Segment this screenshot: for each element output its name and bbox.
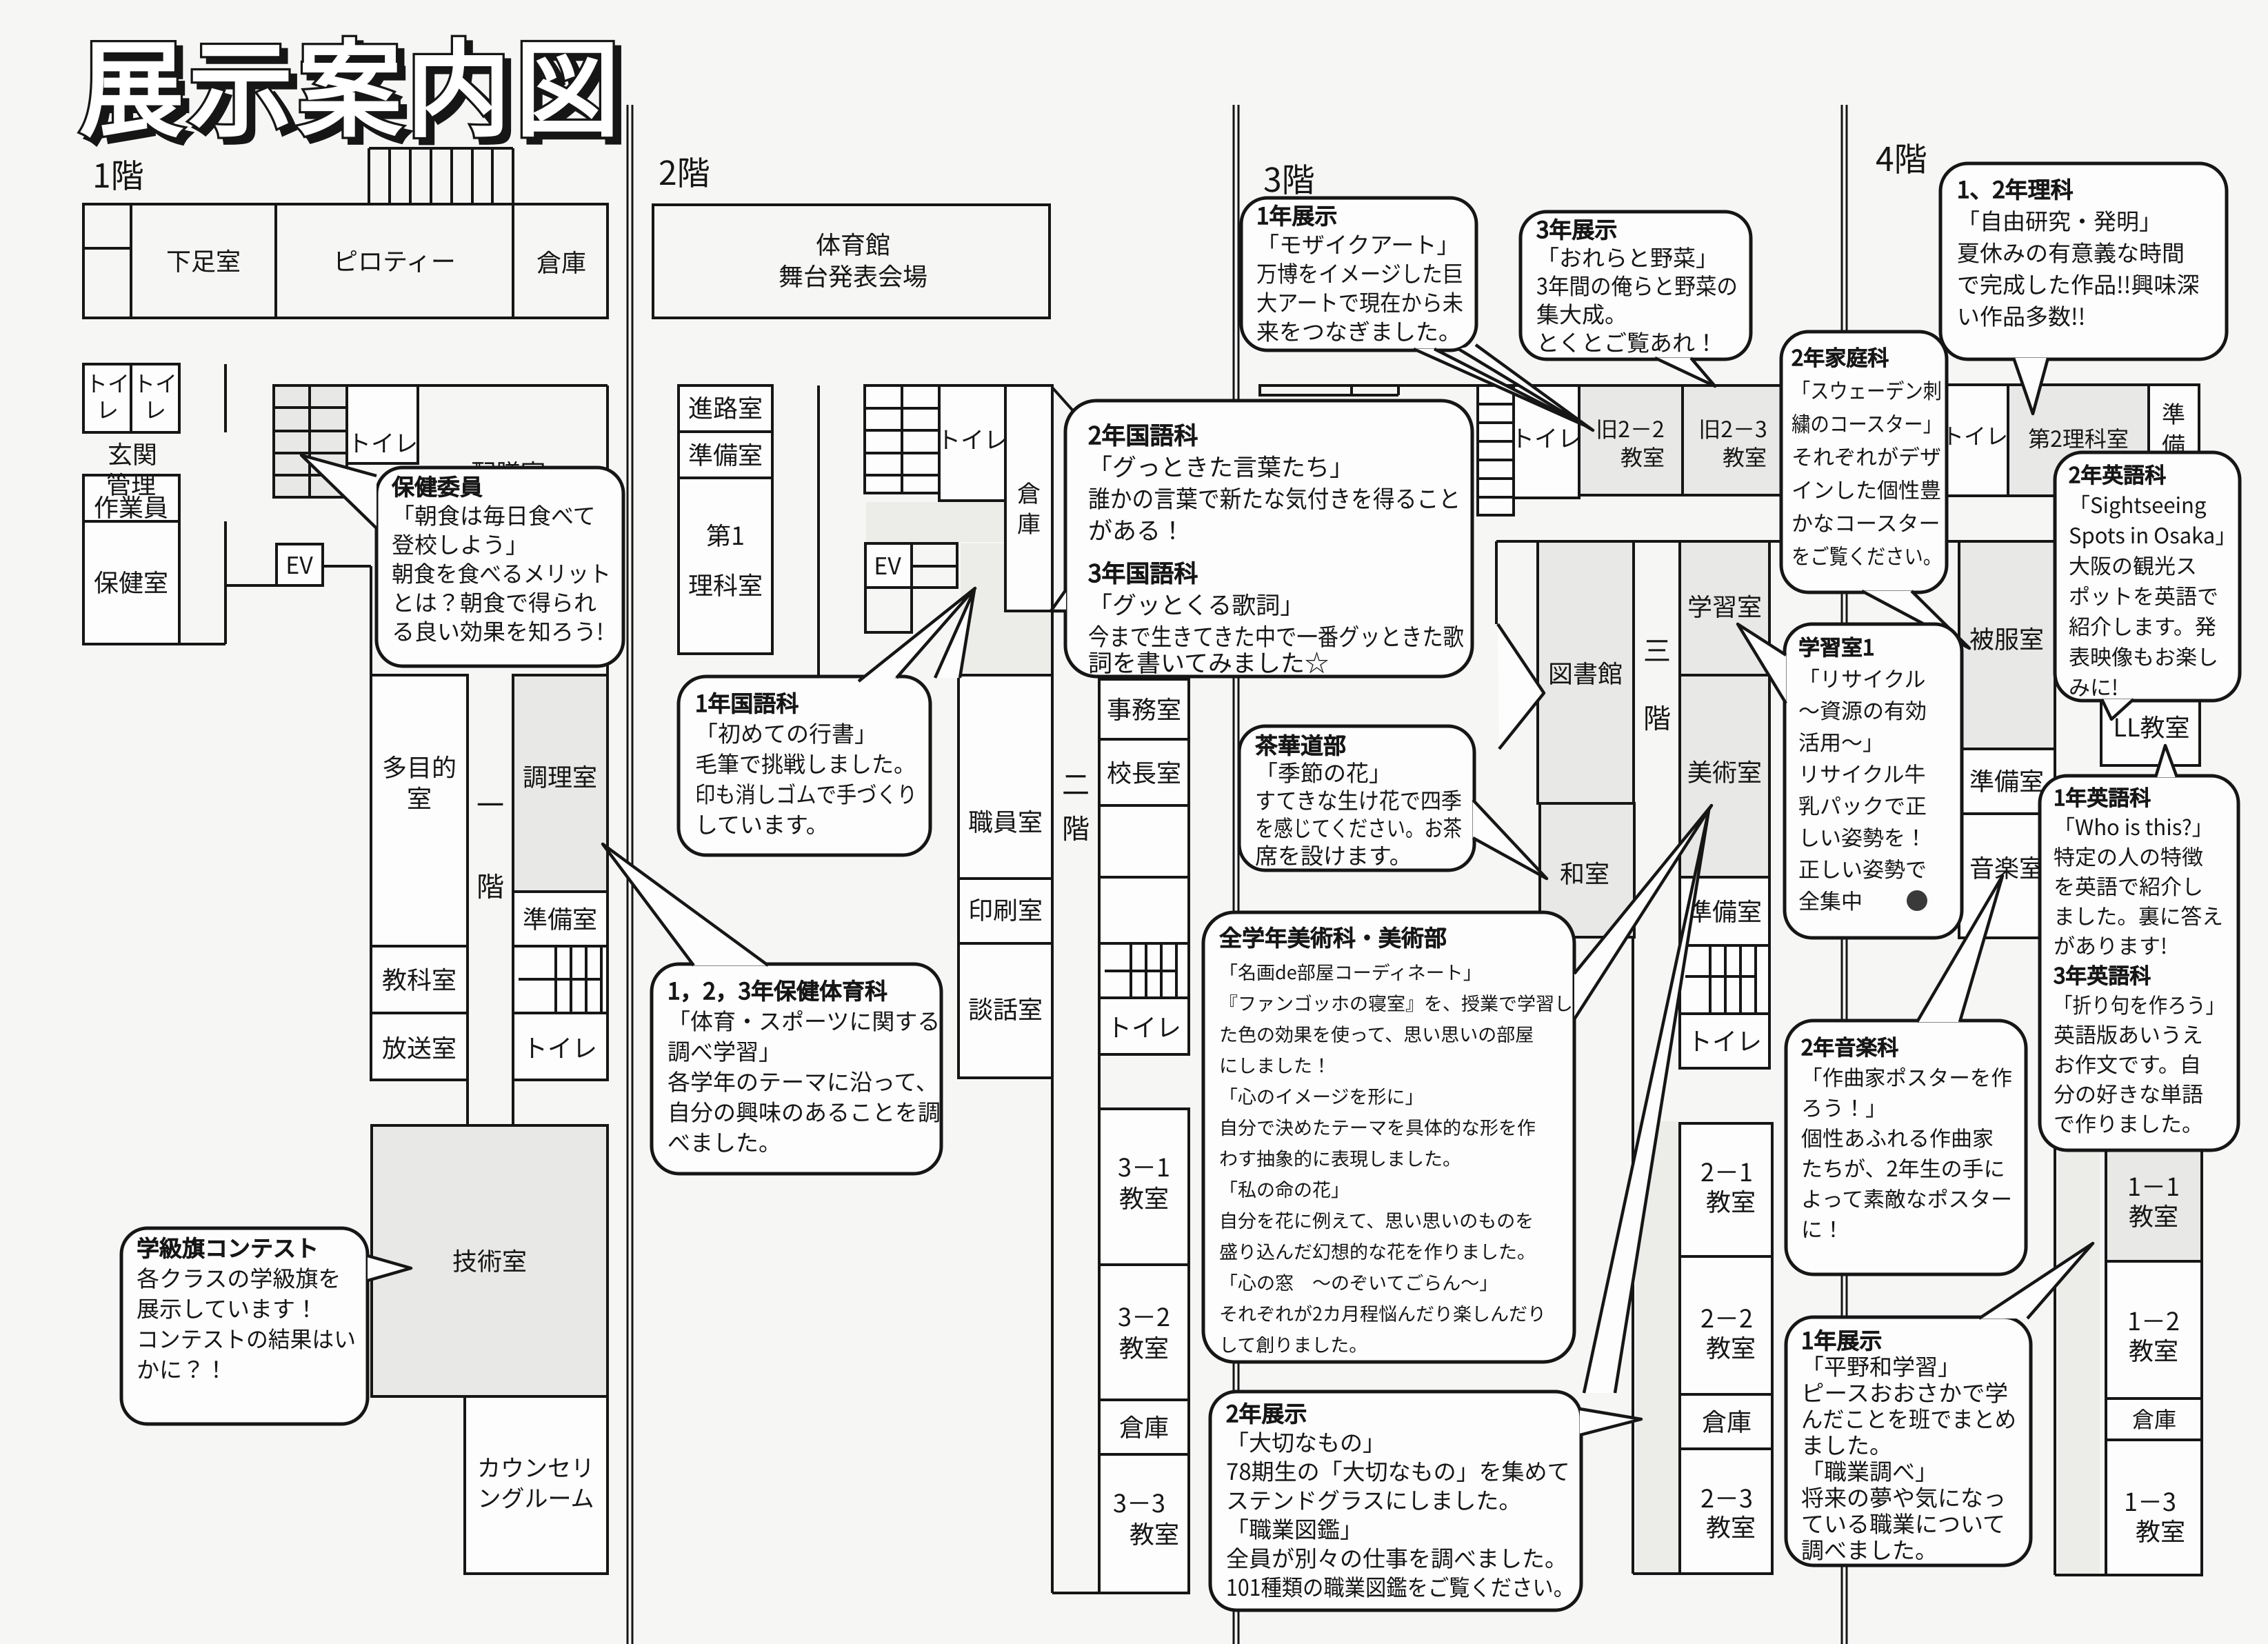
- svg-text:かに？！: かに？！: [137, 1352, 228, 1385]
- svg-text:『ファンゴッホの寝室』を、授業で学習し: 『ファンゴッホの寝室』を、授業で学習し: [1219, 989, 1573, 1016]
- svg-text:準備室: 準備室: [1687, 892, 1762, 928]
- svg-text:自分を花に例えて、思い思いのものを: 自分を花に例えて、思い思いのものを: [1219, 1206, 1534, 1233]
- svg-text:進路室: 進路室: [688, 389, 763, 425]
- svg-text:活用～」: 活用～」: [1798, 725, 1884, 756]
- svg-text:「心の窓 ～のぞいてごらん～」: 「心の窓 ～のぞいてごらん～」: [1219, 1268, 1498, 1295]
- svg-text:倉: 倉: [1017, 475, 1041, 509]
- svg-text:正しい姿勢で: 正しい姿勢で: [1798, 852, 1927, 883]
- svg-text:旧2－2: 旧2－2: [1596, 412, 1665, 444]
- svg-text:「私の命の花」: 「私の命の花」: [1219, 1175, 1349, 1202]
- svg-text:倉庫: 倉庫: [536, 243, 586, 279]
- svg-text:LL教室: LL教室: [2113, 708, 2189, 744]
- svg-text:に！: に！: [1801, 1212, 1844, 1243]
- svg-text:体育館: 体育館: [816, 225, 890, 261]
- svg-text:それぞれがデザ: それぞれがデザ: [1792, 440, 1941, 471]
- svg-text:トイレ: トイレ: [1942, 419, 2008, 451]
- svg-text:調べ学習」: 調べ学習」: [668, 1034, 781, 1067]
- svg-text:4階: 4階: [1876, 132, 1927, 181]
- svg-text:教室: 教室: [2129, 1197, 2178, 1233]
- svg-text:2年国語科: 2年国語科: [1088, 417, 1198, 452]
- svg-text:全員が別々の仕事を調べました。: 全員が別々の仕事を調べました。: [1226, 1541, 1567, 1574]
- svg-text:倉庫: 倉庫: [2132, 1403, 2176, 1434]
- svg-text:3年国語科: 3年国語科: [1088, 554, 1198, 590]
- svg-text:「自由研究・発明」: 「自由研究・発明」: [1957, 203, 2162, 237]
- svg-text:い作品多数!!: い作品多数!!: [1957, 299, 2085, 332]
- svg-text:コンテストの結果はい: コンテストの結果はい: [137, 1321, 356, 1354]
- svg-text:被服室: 被服室: [1969, 620, 2044, 656]
- svg-text:「名画de部屋コーディネート」: 「名画de部屋コーディネート」: [1219, 958, 1482, 985]
- svg-text:た色の効果を使って、思い思いの部屋: た色の効果を使って、思い思いの部屋: [1219, 1020, 1534, 1047]
- svg-text:大アートで現在から未: 大アートで現在から未: [1256, 285, 1463, 318]
- svg-text:自分で決めたテーマを具体的な形を作: 自分で決めたテーマを具体的な形を作: [1219, 1113, 1536, 1140]
- svg-text:よって素敵なポスター: よって素敵なポスター: [1801, 1182, 2012, 1213]
- svg-text:毛筆で挑戦しました。: 毛筆で挑戦しました。: [695, 746, 916, 779]
- svg-text:教室: 教室: [1119, 1329, 1169, 1365]
- svg-text:誰かの言葉で新たな気付きを得ること: 誰かの言葉で新たな気付きを得ること: [1088, 480, 1461, 515]
- svg-text:印刷室: 印刷室: [968, 891, 1043, 927]
- svg-text:「リサイクル: 「リサイクル: [1798, 662, 1925, 693]
- svg-text:三: 三: [1643, 629, 1671, 669]
- svg-text:準備室: 準備室: [523, 900, 597, 936]
- svg-text:トイレ: トイレ: [937, 421, 1007, 455]
- svg-text:一: 一: [476, 783, 504, 823]
- svg-text:第1: 第1: [706, 517, 745, 552]
- svg-text:理科室: 理科室: [688, 566, 763, 602]
- svg-text:2年展示: 2年展示: [1226, 1396, 1307, 1429]
- svg-text:和室: 和室: [1560, 854, 1609, 890]
- svg-text:レ: レ: [97, 393, 119, 425]
- svg-text:各クラスの学級旗を: 各クラスの学級旗を: [137, 1261, 341, 1294]
- svg-text:「グッとくる歌詞」: 「グッとくる歌詞」: [1088, 586, 1304, 621]
- svg-text:倉庫: 倉庫: [1702, 1403, 1752, 1438]
- svg-text:リサイクル牛: リサイクル牛: [1798, 757, 1925, 788]
- svg-text:作業員: 作業員: [94, 488, 168, 524]
- svg-text:る良い効果を知ろう!: る良い効果を知ろう!: [392, 614, 604, 647]
- svg-text:技術室: 技術室: [452, 1242, 527, 1278]
- svg-text:たちが、2年生の手に: たちが、2年生の手に: [1801, 1152, 2005, 1183]
- svg-text:舞台発表会場: 舞台発表会場: [779, 257, 927, 293]
- svg-text:トイレ: トイレ: [1687, 1022, 1762, 1058]
- svg-text:で作りました。: で作りました。: [2054, 1107, 2203, 1138]
- svg-text:1年国語科: 1年国語科: [695, 685, 799, 719]
- svg-text:教室: 教室: [1130, 1515, 1179, 1551]
- svg-text:それぞれが2カ月程悩んだり楽しんだり: それぞれが2カ月程悩んだり楽しんだり: [1219, 1299, 1546, 1326]
- svg-text:しい姿勢を！: しい姿勢を！: [1798, 821, 1927, 852]
- svg-text:2年家庭科: 2年家庭科: [1792, 341, 1889, 372]
- svg-text:大阪の観光ス: 大阪の観光ス: [2069, 549, 2197, 580]
- svg-text:ポットを英語で: ポットを英語で: [2069, 579, 2218, 610]
- svg-text:英語版あいうえ: 英語版あいうえ: [2054, 1018, 2203, 1049]
- svg-text:カウンセリ: カウンセリ: [477, 1450, 594, 1483]
- svg-text:Spots in Osaka」: Spots in Osaka」: [2069, 519, 2236, 550]
- svg-text:トイレ: トイレ: [348, 425, 418, 459]
- svg-text:自分の興味のあることを調: 自分の興味のあることを調: [668, 1094, 941, 1127]
- svg-text:しています。: しています。: [695, 807, 829, 840]
- svg-text:個性あふれる作曲家: 個性あふれる作曲家: [1801, 1121, 1994, 1152]
- svg-text:とは？朝食で得られ: とは？朝食で得られ: [392, 585, 596, 618]
- svg-text:教室: 教室: [1706, 1508, 1756, 1544]
- svg-text:印も消しゴムで手づくり: 印も消しゴムで手づくり: [695, 776, 917, 810]
- svg-text:調理室: 調理室: [523, 758, 597, 794]
- svg-text:トイレ: トイレ: [1511, 420, 1581, 454]
- svg-text:EV: EV: [874, 548, 901, 581]
- svg-text:ングルーム: ングルーム: [478, 1480, 594, 1514]
- svg-text:朝食を食べるメリット: 朝食を食べるメリット: [392, 556, 611, 589]
- svg-text:1階: 1階: [92, 149, 144, 197]
- svg-text:がある！: がある！: [1088, 512, 1185, 547]
- svg-text:分の好きな単語: 分の好きな単語: [2054, 1077, 2203, 1108]
- svg-text:調べました。: 調べました。: [1801, 1532, 1938, 1565]
- svg-text:レ: レ: [144, 393, 166, 425]
- svg-text:教室: 教室: [2129, 1332, 2178, 1367]
- svg-text:トイレ: トイレ: [1107, 1008, 1181, 1044]
- svg-text:ろう！」: ろう！」: [1801, 1091, 1887, 1122]
- svg-text:美術室: 美術室: [1687, 753, 1762, 789]
- svg-text:1，2，3年保健体育科: 1，2，3年保健体育科: [668, 973, 887, 1006]
- svg-text:ステンドグラスにしました。: ステンドグラスにしました。: [1226, 1483, 1521, 1516]
- svg-text:音楽室: 音楽室: [1969, 849, 2044, 885]
- svg-text:ピロティー: ピロティー: [333, 242, 456, 278]
- svg-text:席を設けます。: 席を設けます。: [1255, 838, 1412, 871]
- svg-text:階: 階: [476, 865, 504, 905]
- svg-text:1年英語科: 1年英語科: [2054, 781, 2151, 812]
- svg-text:学習室: 学習室: [1687, 588, 1762, 623]
- svg-text:～資源の有効: ～資源の有効: [1798, 694, 1927, 725]
- svg-text:「朝食は毎日食べて: 「朝食は毎日食べて: [392, 498, 596, 531]
- svg-text:繍のコースター」: 繍のコースター」: [1792, 407, 1942, 438]
- svg-text:とくとご覧あれ！: とくとご覧あれ！: [1536, 325, 1718, 358]
- svg-text:教室: 教室: [1620, 441, 1665, 472]
- svg-text:各学年のテーマに沿って、: 各学年のテーマに沿って、: [668, 1064, 939, 1097]
- svg-text:階: 階: [1062, 807, 1090, 847]
- svg-text:1年展示: 1年展示: [1256, 198, 1337, 231]
- svg-text:ました。裏に答え: ました。裏に答え: [2054, 899, 2223, 930]
- svg-text:をご覧ください。: をご覧ください。: [1792, 539, 1942, 570]
- svg-text:校長室: 校長室: [1107, 754, 1181, 790]
- svg-text:表映像もお楽し: 表映像もお楽し: [2069, 640, 2218, 671]
- svg-text:事務室: 事務室: [1107, 690, 1181, 726]
- svg-text:を英語で紹介し: を英語で紹介し: [2054, 870, 2203, 901]
- svg-text:にしました！: にしました！: [1219, 1051, 1331, 1078]
- svg-text:「心のイメージを形に」: 「心のイメージを形に」: [1219, 1082, 1423, 1109]
- svg-text:準: 準: [2162, 396, 2185, 430]
- svg-text:学級旗コンテスト: 学級旗コンテスト: [137, 1230, 319, 1263]
- svg-text:インした個性豊: インした個性豊: [1792, 473, 1941, 504]
- svg-text:展示案内図: 展示案内図: [79, 6, 624, 157]
- svg-text:教室: 教室: [1723, 441, 1767, 472]
- svg-text:「作曲家ポスターを作: 「作曲家ポスターを作: [1801, 1061, 2012, 1092]
- svg-text:3階: 3階: [1263, 153, 1315, 201]
- svg-text:があります!: があります!: [2054, 929, 2167, 960]
- svg-text:みに!: みに!: [2069, 670, 2118, 701]
- svg-text:展示しています！: 展示しています！: [137, 1291, 318, 1324]
- svg-text:盛り込んだ幻想的な花を作りました。: 盛り込んだ幻想的な花を作りました。: [1219, 1237, 1536, 1264]
- svg-text:下足室: 下足室: [166, 242, 241, 278]
- svg-text:2年英語科: 2年英語科: [2069, 458, 2166, 489]
- svg-text:保健委員: 保健委員: [392, 469, 483, 502]
- svg-text:学習室1: 学習室1: [1798, 630, 1874, 661]
- svg-text:第2理科室: 第2理科室: [2028, 422, 2129, 454]
- svg-text:階: 階: [1643, 696, 1671, 736]
- svg-text:「大切なもの」: 「大切なもの」: [1226, 1425, 1385, 1458]
- svg-text:2年音楽科: 2年音楽科: [1801, 1030, 1898, 1061]
- svg-text:教室: 教室: [1119, 1179, 1169, 1215]
- svg-text:2階: 2階: [659, 146, 710, 194]
- svg-text:保健室: 保健室: [94, 563, 168, 599]
- svg-text:「折り句を作ろう」: 「折り句を作ろう」: [2054, 988, 2225, 1019]
- svg-text:全集中: 全集中: [1798, 884, 1863, 915]
- svg-text:詞を書いてみました☆: 詞を書いてみました☆: [1088, 644, 1329, 679]
- svg-text:3年英語科: 3年英語科: [2054, 959, 2151, 990]
- svg-text:特定の人の特徴: 特定の人の特徴: [2054, 840, 2203, 871]
- svg-text:「スウェーデン刺: 「スウェーデン刺: [1792, 374, 1942, 405]
- svg-text:「モザイクアート」: 「モザイクアート」: [1256, 227, 1459, 260]
- svg-text:教室: 教室: [2136, 1512, 2185, 1548]
- svg-text:庫: 庫: [1017, 505, 1041, 539]
- svg-text:「グっときた言葉たち」: 「グっときた言葉たち」: [1088, 448, 1354, 483]
- svg-text:登校しよう」: 登校しよう」: [392, 527, 528, 560]
- svg-text:倉庫: 倉庫: [1119, 1408, 1169, 1444]
- svg-text:「Who is this?」: 「Who is this?」: [2054, 810, 2214, 841]
- svg-text:談話室: 談話室: [968, 990, 1043, 1026]
- svg-text:全学年美術科・美術部: 全学年美術科・美術部: [1219, 920, 1447, 953]
- svg-text:「Sightseeing: 「Sightseeing: [2069, 488, 2207, 519]
- svg-text:101種類の職業図鑑をご覧ください。: 101種類の職業図鑑をご覧ください。: [1226, 1570, 1574, 1603]
- svg-text:お作文です。自: お作文です。自: [2054, 1047, 2201, 1079]
- svg-text:万博をイメージした巨: 万博をイメージした巨: [1256, 256, 1463, 289]
- svg-text:乳パックで正: 乳パックで正: [1798, 789, 1927, 820]
- svg-text:で完成した作品!!興味深: で完成した作品!!興味深: [1957, 267, 2199, 300]
- svg-text:1、2年理科: 1、2年理科: [1957, 172, 2074, 205]
- svg-text:「体育・スポーツに関する: 「体育・スポーツに関する: [668, 1003, 940, 1036]
- svg-text:かなコースター: かなコースター: [1792, 506, 1940, 537]
- svg-text:べました。: べました。: [668, 1125, 781, 1158]
- svg-text:教科室: 教科室: [382, 961, 456, 996]
- svg-text:教室: 教室: [1706, 1329, 1756, 1365]
- svg-text:トイレ: トイレ: [523, 1029, 597, 1065]
- svg-text:準備室: 準備室: [688, 436, 763, 472]
- svg-text:準備室: 準備室: [1969, 762, 2044, 798]
- svg-text:室: 室: [407, 779, 432, 815]
- svg-text:来をつなぎました。: 来をつなぎました。: [1256, 314, 1461, 347]
- svg-text:EV: EV: [285, 547, 313, 581]
- svg-text:放送室: 放送室: [382, 1029, 456, 1065]
- svg-text:紹介します。発: 紹介します。発: [2069, 610, 2216, 641]
- svg-text:「職業図鑑」: 「職業図鑑」: [1226, 1512, 1363, 1545]
- svg-text:職員室: 職員室: [968, 803, 1043, 839]
- svg-text:教室: 教室: [1706, 1183, 1756, 1219]
- svg-text:旧2－3: 旧2－3: [1698, 412, 1767, 444]
- svg-text:夏休みの有意義な時間: 夏休みの有意義な時間: [1957, 235, 2185, 268]
- svg-text:図書館: 図書館: [1548, 654, 1623, 690]
- svg-text:「初めての行書」: 「初めての行書」: [695, 716, 877, 749]
- svg-text:して創りました。: して創りました。: [1219, 1330, 1367, 1357]
- svg-text:78期生の「大切なもの」を集めて: 78期生の「大切なもの」を集めて: [1226, 1454, 1570, 1487]
- svg-text:二: 二: [1062, 763, 1090, 803]
- svg-text:わす抽象的に表現しました。: わす抽象的に表現しました。: [1219, 1144, 1461, 1171]
